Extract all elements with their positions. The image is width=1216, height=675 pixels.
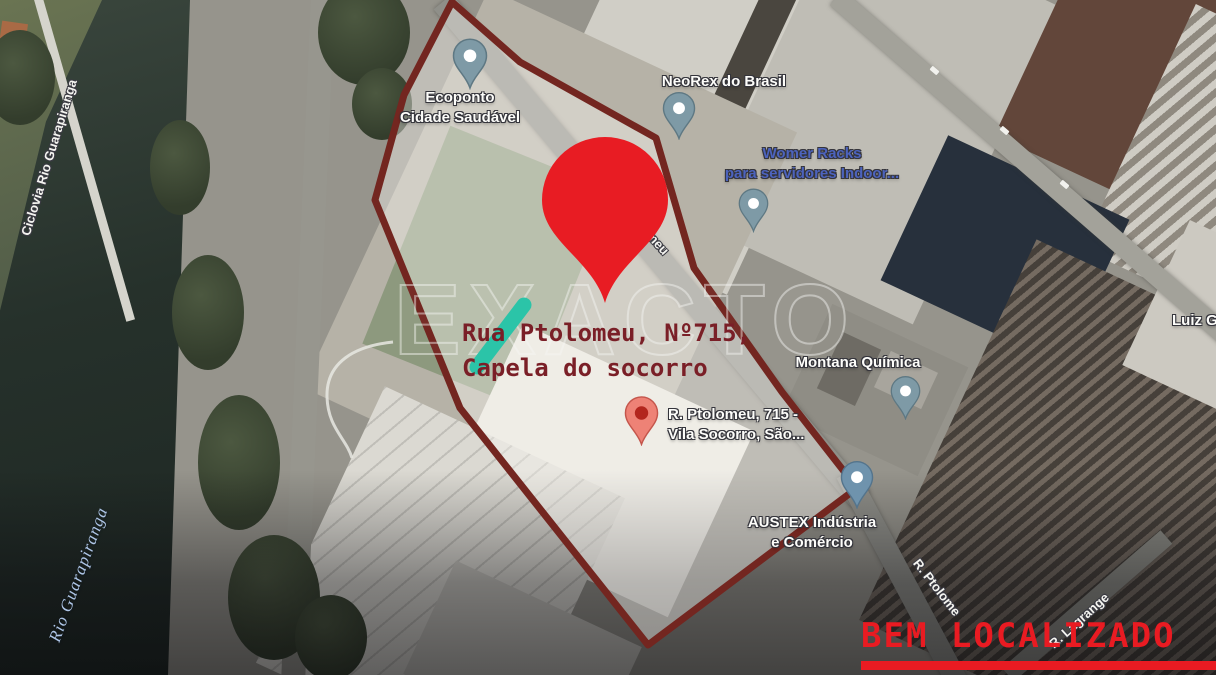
poi-pin-austex[interactable] — [840, 461, 874, 509]
address-result-pin[interactable] — [624, 396, 659, 446]
poi-label-austex[interactable]: AUSTEX Indústria e Comércio — [748, 513, 876, 552]
poi-label-neorex[interactable]: NeoRex do Brasil — [662, 72, 786, 92]
poi-label-ecoponto[interactable]: Ecoponto Cidade Saudável — [400, 88, 520, 127]
property-marker-pin — [536, 131, 674, 306]
property-address-text: Rua Ptolomeu, Nº715, Capela do socorro — [462, 316, 751, 386]
banner-underline — [861, 661, 1216, 670]
poi-pin-montana[interactable] — [890, 376, 921, 420]
map-canvas[interactable]: Ciclovia Rio Guarapiranga Rio Guarapiran… — [0, 0, 1216, 675]
poi-pin-womer[interactable] — [738, 188, 769, 233]
banner-bem-localizado: BEM LOCALIZADO — [861, 616, 1176, 656]
poi-pin-ecoponto[interactable] — [452, 38, 488, 90]
poi-label-luiz[interactable]: Luiz G — [1172, 311, 1216, 331]
poi-label-womer-racks[interactable]: Womer Racks para servidores Indoor... — [725, 144, 899, 183]
poi-label-address-pin[interactable]: R. Ptolomeu, 715 - Vila Socorro, São... — [668, 405, 804, 444]
